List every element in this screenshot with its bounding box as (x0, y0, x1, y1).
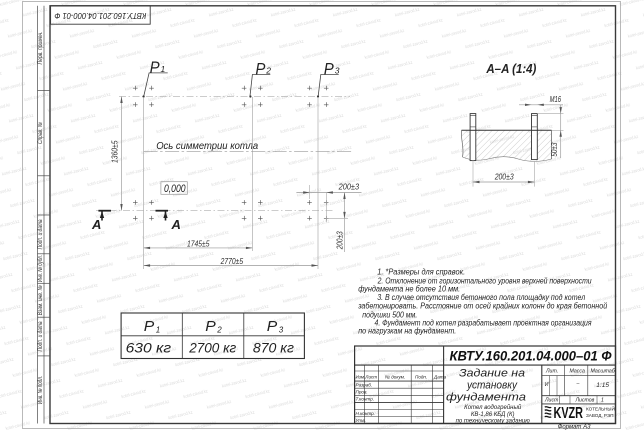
svg-text:kotel-zavod.kz: kotel-zavod.kz (584, 261, 610, 272)
svg-text:№ докум.: № докум. (385, 375, 405, 380)
svg-text:kotel-zavod.kz: kotel-zavod.kz (375, 250, 401, 261)
svg-text:1: 1 (601, 398, 604, 404)
svg-text:kotel-zavod.kz: kotel-zavod.kz (266, 229, 292, 240)
svg-text:kotel-zavod.kz: kotel-zavod.kz (11, 282, 37, 293)
svg-text:kotel-zavod.kz: kotel-zavod.kz (527, 38, 553, 49)
svg-text:kotel-zavod.kz: kotel-zavod.kz (81, 314, 107, 325)
svg-text:kotel-zavod.kz: kotel-zavod.kz (260, 367, 286, 378)
svg-text:kotel-zavod.kz: kotel-zavod.kz (297, 272, 323, 283)
svg-text:kotel-zavod.kz: kotel-zavod.kz (217, 38, 243, 49)
svg-text:kotel-zavod.kz: kotel-zavod.kz (251, 250, 277, 261)
svg-text:P: P (205, 318, 216, 335)
svg-text:kotel-zavod.kz: kotel-zavod.kz (178, 49, 204, 60)
svg-text:kotel-zavod.kz: kotel-zavod.kz (196, 197, 222, 208)
svg-text:A: A (171, 217, 181, 232)
svg-text:kotel-zavod.kz: kotel-zavod.kz (522, 261, 548, 272)
svg-text:kotel-zavod.kz: kotel-zavod.kz (614, 219, 640, 230)
svg-text:kotel-zavod.kz: kotel-zavod.kz (364, 49, 390, 60)
svg-text:забетонировать. Расстояние от: забетонировать. Расстояние от осей крайн… (357, 302, 607, 311)
svg-text:kotel-zavod.kz: kotel-zavod.kz (220, 293, 246, 304)
svg-text:Подп.: Подп. (415, 375, 427, 380)
svg-text:ЗАВОД, РЭП: ЗАВОД, РЭП (586, 413, 614, 418)
svg-text:kotel-zavod.kz: kotel-zavod.kz (490, 219, 516, 230)
svg-text:kotel-zavod.kz: kotel-zavod.kz (187, 166, 213, 177)
svg-text:kotel-zavod.kz: kotel-zavod.kz (403, 38, 429, 49)
svg-text:kotel-zavod.kz: kotel-zavod.kz (420, 187, 446, 198)
svg-text:kotel-zavod.kz: kotel-zavod.kz (459, 176, 485, 187)
svg-text:kotel-zavod.kz: kotel-zavod.kz (458, 91, 484, 102)
svg-text:установку: установку (466, 380, 518, 392)
svg-text:kotel-zavod.kz: kotel-zavod.kz (389, 144, 415, 155)
svg-text:kotel-zavod.kz: kotel-zavod.kz (150, 261, 176, 272)
svg-text:200±3: 200±3 (335, 231, 345, 250)
svg-text:kotel-zavod.kz: kotel-zavod.kz (109, 102, 135, 113)
svg-text:kotel-zavod.kz: kotel-zavod.kz (225, 70, 251, 81)
svg-text:A–A (1:4): A–A (1:4) (485, 62, 536, 76)
svg-text:kotel-zavod.kz: kotel-zavod.kz (416, 409, 442, 420)
svg-text:Утв.: Утв. (356, 418, 366, 423)
svg-text:kotel-zavod.kz: kotel-zavod.kz (132, 113, 158, 124)
svg-text:kotel-zavod.kz: kotel-zavod.kz (480, 17, 506, 28)
svg-text:kotel-zavod.kz: kotel-zavod.kz (620, 81, 644, 92)
svg-text:kotel-zavod.kz: kotel-zavod.kz (0, 388, 23, 399)
svg-text:kotel-zavod.kz: kotel-zavod.kz (194, 113, 220, 124)
svg-text:kotel-zavod.kz: kotel-zavod.kz (449, 60, 475, 71)
svg-text:kotel-zavod.kz: kotel-zavod.kz (56, 219, 82, 230)
svg-text:Масштаб: Масштаб (591, 368, 616, 374)
svg-text:kotel-zavod.kz: kotel-zavod.kz (397, 176, 423, 187)
svg-text:kotel-zavod.kz: kotel-zavod.kz (306, 303, 332, 314)
svg-text:kotel-zavod.kz: kotel-zavod.kz (613, 134, 639, 145)
svg-text:M16: M16 (550, 94, 562, 104)
svg-text:kotel-zavod.kz: kotel-zavod.kz (441, 28, 467, 39)
svg-text:kotel-zavod.kz: kotel-zavod.kz (97, 378, 123, 389)
svg-text:kotel-zavod.kz: kotel-zavod.kz (365, 134, 391, 145)
svg-text:Лит.: Лит. (545, 368, 558, 374)
svg-text:kotel-zavod.kz: kotel-zavod.kz (39, 70, 65, 81)
svg-text:kotel-zavod.kz: kotel-zavod.kz (496, 81, 522, 92)
svg-text:kotel-zavod.kz: kotel-zavod.kz (274, 261, 300, 272)
svg-text:50±3: 50±3 (549, 142, 559, 156)
svg-text:kotel-zavod.kz: kotel-zavod.kz (318, 113, 344, 124)
svg-text:kotel-zavod.kz: kotel-zavod.kz (198, 367, 224, 378)
svg-text:kotel-zavod.kz: kotel-zavod.kz (302, 49, 328, 60)
svg-text:kotel-zavod.kz: kotel-zavod.kz (334, 91, 360, 102)
svg-text:kotel-zavod.kz: kotel-zavod.kz (0, 187, 12, 198)
svg-text:870 кг: 870 кг (253, 340, 294, 356)
svg-text:kotel-zavod.kz: kotel-zavod.kz (0, 134, 19, 145)
svg-text:kotel-zavod.kz: kotel-zavod.kz (51, 356, 77, 367)
svg-text:kotel-zavod.kz: kotel-zavod.kz (542, 17, 568, 28)
svg-text:kotel-zavod.kz: kotel-zavod.kz (628, 113, 644, 124)
svg-text:kotel-zavod.kz: kotel-zavod.kz (392, 399, 418, 410)
svg-text:kotel-zavod.kz: kotel-zavod.kz (341, 38, 367, 49)
svg-text:Подп. и дата: Подп. и дата (38, 219, 44, 250)
svg-text:kotel-zavod.kz: kotel-zavod.kz (249, 166, 275, 177)
svg-text:kotel-zavod.kz: kotel-zavod.kz (183, 388, 209, 399)
svg-text:kotel-zavod.kz: kotel-zavod.kz (168, 409, 194, 420)
svg-text:kotel-zavod.kz: kotel-zavod.kz (33, 208, 59, 219)
svg-text:Лист: Лист (544, 398, 559, 404)
svg-text:kotel-zavod.kz: kotel-zavod.kz (189, 250, 215, 261)
svg-text:kotel-zavod.kz: kotel-zavod.kz (245, 388, 271, 399)
svg-text:kotel-zavod.kz: kotel-zavod.kz (575, 144, 601, 155)
svg-text:kotel-zavod.kz: kotel-zavod.kz (103, 240, 129, 251)
svg-text:kotel-zavod.kz: kotel-zavod.kz (279, 38, 305, 49)
svg-text:kotel-zavod.kz: kotel-zavod.kz (638, 229, 644, 240)
svg-text:2: 2 (265, 65, 271, 75)
svg-text:фундамента не более 10 мм.: фундамента не более 10 мм. (358, 284, 460, 293)
svg-text:kotel-zavod.kz: kotel-zavod.kz (282, 293, 308, 304)
svg-text:Изм.Лист: Изм.Лист (356, 375, 378, 380)
svg-text:kotel-zavod.kz: kotel-zavod.kz (337, 346, 363, 357)
svg-text:kotel-zavod.kz: kotel-zavod.kz (59, 388, 85, 399)
svg-text:kotel-zavod.kz: kotel-zavod.kz (193, 28, 219, 39)
svg-text:kotel-zavod.kz: kotel-zavod.kz (218, 123, 244, 134)
svg-text:kotel-zavod.kz: kotel-zavod.kz (320, 197, 346, 208)
svg-text:kotel-zavod.kz: kotel-zavod.kz (164, 155, 190, 166)
svg-text:kotel-zavod.kz: kotel-zavod.kz (343, 208, 369, 219)
svg-text:kotel-zavod.kz: kotel-zavod.kz (482, 187, 508, 198)
svg-text:kotel-zavod.kz: kotel-zavod.kz (87, 176, 113, 187)
svg-text:kotel-zavod.kz: kotel-zavod.kz (48, 187, 74, 198)
svg-text:kotel-zavod.kz: kotel-zavod.kz (332, 7, 358, 18)
svg-text:kotel-zavod.kz: kotel-zavod.kz (465, 38, 491, 49)
svg-text:kotel-zavod.kz: kotel-zavod.kz (280, 123, 306, 134)
svg-text:Справ. №: Справ. № (37, 122, 44, 144)
svg-text:по нагрузкам на фундамент.: по нагрузкам на фундамент. (358, 327, 456, 336)
svg-text:kotel-zavod.kz: kotel-zavod.kz (111, 272, 137, 283)
svg-text:P: P (267, 318, 278, 335)
svg-text:КВТУ.160.201.04.000-01 Ф: КВТУ.160.201.04.000-01 Ф (54, 11, 147, 20)
svg-text:kotel-zavod.kz: kotel-zavod.kz (142, 229, 168, 240)
svg-text:kotel-zavod.kz: kotel-zavod.kz (144, 399, 170, 410)
svg-text:kotel-zavod.kz: kotel-zavod.kz (74, 367, 100, 378)
svg-text:kotel-zavod.kz: kotel-zavod.kz (0, 155, 4, 166)
svg-text:kotel-zavod.kz: kotel-zavod.kz (166, 325, 192, 336)
svg-text:kotel-zavod.kz: kotel-zavod.kz (0, 17, 10, 28)
svg-text:по техническому заданию: по техническому заданию (456, 419, 531, 425)
svg-text:kotel-zavod.kz: kotel-zavod.kz (444, 197, 470, 208)
svg-text:kotel-zavod.kz: kotel-zavod.kz (314, 335, 340, 346)
svg-text:И: И (545, 382, 549, 388)
svg-text:kotel-zavod.kz: kotel-zavod.kz (208, 7, 234, 18)
svg-text:kotel-zavod.kz: kotel-zavod.kz (317, 28, 343, 39)
svg-text:kotel-zavod.kz: kotel-zavod.kz (382, 197, 408, 208)
svg-text:kotel-zavod.kz: kotel-zavod.kz (41, 240, 67, 251)
svg-text:kotel-zavod.kz: kotel-zavod.kz (499, 250, 525, 261)
svg-text:kotel-zavod.kz: kotel-zavod.kz (170, 17, 196, 28)
svg-text:kotel-zavod.kz: kotel-zavod.kz (0, 240, 5, 251)
svg-text:kotel-zavod.kz: kotel-zavod.kz (405, 208, 431, 219)
svg-text:kotel-zavod.kz: kotel-zavod.kz (413, 240, 439, 251)
svg-text:1. *Размеры для справок.: 1. *Размеры для справок. (377, 267, 465, 276)
svg-text:kotel-zavod.kz: kotel-zavod.kz (125, 166, 151, 177)
svg-text:kotel-zavod.kz: kotel-zavod.kz (558, 81, 584, 92)
svg-text:kotel-zavod.kz: kotel-zavod.kz (349, 70, 375, 81)
svg-text:kotel-zavod.kz: kotel-zavod.kz (597, 70, 623, 81)
svg-text:kotel-zavod.kz: kotel-zavod.kz (630, 197, 644, 208)
svg-text:kotel-zavod.kz: kotel-zavod.kz (106, 409, 132, 420)
svg-text:1:15: 1:15 (596, 382, 609, 389)
svg-text:kotel-zavod.kz: kotel-zavod.kz (503, 28, 529, 39)
svg-text:kotel-zavod.kz: kotel-zavod.kz (72, 197, 98, 208)
svg-text:kotel-zavod.kz: kotel-zavod.kz (281, 208, 307, 219)
svg-text:KVZR: KVZR (554, 405, 584, 422)
svg-text:kotel-zavod.kz: kotel-zavod.kz (514, 229, 540, 240)
svg-text:kotel-zavod.kz: kotel-zavod.kz (330, 399, 356, 410)
svg-text:kotel-zavod.kz: kotel-zavod.kz (232, 17, 258, 28)
svg-text:kotel-zavod.kz: kotel-zavod.kz (609, 356, 635, 367)
svg-text:Н.контр.: Н.контр. (356, 411, 375, 416)
svg-text:kotel-zavod.kz: kotel-zavod.kz (96, 293, 122, 304)
svg-text:kotel-zavod.kz: kotel-zavod.kz (467, 208, 493, 219)
svg-text:kotel-zavod.kz: kotel-zavod.kz (265, 144, 291, 155)
svg-text:kotel-zavod.kz: kotel-zavod.kz (32, 123, 58, 134)
svg-text:kotel-zavod.kz: kotel-zavod.kz (272, 91, 298, 102)
svg-text:1360±5: 1360±5 (110, 140, 120, 163)
svg-text:kotel-zavod.kz: kotel-zavod.kz (390, 229, 416, 240)
svg-text:kotel-zavod.kz: kotel-zavod.kz (77, 60, 103, 71)
svg-text:kotel-zavod.kz: kotel-zavod.kz (49, 272, 75, 283)
svg-text:Взам. инв. №: Взам. инв. № (37, 285, 44, 315)
svg-text:kotel-zavod.kz: kotel-zavod.kz (65, 250, 91, 261)
svg-text:kotel-zavod.kz: kotel-zavod.kz (290, 325, 316, 336)
svg-text:kotel-zavod.kz: kotel-zavod.kz (3, 250, 29, 261)
svg-text:kotel-zavod.kz: kotel-zavod.kz (287, 70, 313, 81)
svg-text:kotel-zavod.kz: kotel-zavod.kz (589, 38, 615, 49)
svg-text:kotel-zavod.kz: kotel-zavod.kz (311, 166, 337, 177)
svg-text:kotel-zavod.kz: kotel-zavod.kz (544, 187, 570, 198)
svg-text:kotel-zavod.kz: kotel-zavod.kz (621, 166, 644, 177)
svg-text:kotel-zavod.kz: kotel-zavod.kz (86, 91, 112, 102)
svg-text:kotel-zavod.kz: kotel-zavod.kz (599, 240, 625, 251)
svg-text:kotel-zavod.kz: kotel-zavod.kz (619, 0, 644, 7)
svg-text:kotel-zavod.kz: kotel-zavod.kz (242, 219, 268, 230)
svg-text:kotel-zavod.kz: kotel-zavod.kz (426, 49, 452, 60)
svg-text:kotel-zavod.kz: kotel-zavod.kz (0, 49, 18, 60)
svg-text:kotel-zavod.kz: kotel-zavod.kz (227, 240, 253, 251)
svg-text:kotel-zavod.kz: kotel-zavod.kz (240, 49, 266, 60)
svg-text:kotel-zavod.kz: kotel-zavod.kz (42, 325, 68, 336)
svg-text:kotel-zavod.kz: kotel-zavod.kz (307, 388, 333, 399)
svg-text:kotel-zavod.kz: kotel-zavod.kz (0, 272, 13, 283)
svg-text:3: 3 (335, 65, 340, 75)
svg-text:kotel-zavod.kz: kotel-zavod.kz (583, 176, 609, 187)
svg-text:200±3: 200±3 (338, 181, 360, 191)
svg-text:Инв. № подл.: Инв. № подл. (37, 376, 44, 404)
svg-text:kotel-zavod.kz: kotel-zavod.kz (456, 7, 482, 18)
svg-text:kotel-zavod.kz: kotel-zavod.kz (434, 81, 460, 92)
svg-text:kotel-zavod.kz: kotel-zavod.kz (248, 81, 274, 92)
svg-text:2700 кг: 2700 кг (188, 340, 236, 356)
svg-text:kotel-zavod.kz: kotel-zavod.kz (604, 17, 630, 28)
svg-text:kotel-zavod.kz: kotel-zavod.kz (342, 123, 368, 134)
svg-text:kotel-zavod.kz: kotel-zavod.kz (336, 261, 362, 272)
svg-text:kotel-zavod.kz: kotel-zavod.kz (270, 7, 296, 18)
svg-text:kotel-zavod.kz: kotel-zavod.kz (535, 70, 561, 81)
svg-text:kotel-zavod.kz: kotel-zavod.kz (233, 102, 259, 113)
svg-text:kotel-zavod.kz: kotel-zavod.kz (158, 293, 184, 304)
svg-text:Котел водогрейный: Котел водогрейный (464, 404, 522, 411)
svg-text:kotel-zavod.kz: kotel-zavod.kz (201, 60, 227, 71)
svg-text:kotel-zavod.kz: kotel-zavod.kz (104, 325, 130, 336)
svg-text:kotel-zavod.kz: kotel-zavod.kz (210, 91, 236, 102)
svg-text:kotel-zavod.kz: kotel-zavod.kz (500, 335, 526, 346)
svg-text:kotel-zavod.kz: kotel-zavod.kz (101, 70, 127, 81)
svg-text:kotel-zavod.kz: kotel-zavod.kz (442, 113, 468, 124)
svg-text:kotel-zavod.kz: kotel-zavod.kz (616, 303, 642, 314)
svg-text:kotel-zavod.kz: kotel-zavod.kz (576, 229, 602, 240)
svg-text:kotel-zavod.kz: kotel-zavod.kz (366, 219, 392, 230)
svg-text:kotel-zavod.kz: kotel-zavod.kz (148, 91, 174, 102)
svg-text:kotel-zavod.kz: kotel-zavod.kz (221, 378, 247, 389)
svg-text:kotel-zavod.kz: kotel-zavod.kz (44, 409, 70, 420)
svg-text:kotel-zavod.kz: kotel-zavod.kz (637, 144, 644, 155)
svg-text:kotel-zavod.kz: kotel-zavod.kz (22, 7, 48, 18)
svg-text:kotel-zavod.kz: kotel-zavod.kz (93, 38, 119, 49)
svg-text:kotel-zavod.kz: kotel-zavod.kz (256, 113, 282, 124)
svg-text:kotel-zavod.kz: kotel-zavod.kz (380, 113, 406, 124)
svg-text:kotel-zavod.kz: kotel-zavod.kz (504, 113, 530, 124)
svg-text:200±3: 200±3 (494, 171, 514, 181)
svg-text:kotel-zavod.kz: kotel-zavod.kz (228, 325, 254, 336)
svg-text:kotel-zavod.kz: kotel-zavod.kz (437, 250, 463, 261)
svg-text:kotel-zavod.kz: kotel-zavod.kz (565, 28, 591, 39)
svg-text:kotel-zavod.kz: kotel-zavod.kz (623, 250, 644, 261)
svg-text:kotel-zavod.kz: kotel-zavod.kz (550, 49, 576, 60)
svg-text:kotel-zavod.kz: kotel-zavod.kz (537, 240, 563, 251)
svg-text:kotel-zavod.kz: kotel-zavod.kz (8, 113, 34, 124)
svg-text:kotel-zavod.kz: kotel-zavod.kz (561, 250, 587, 261)
svg-text:kotel-zavod.kz: kotel-zavod.kz (552, 219, 578, 230)
svg-text:kotel-zavod.kz: kotel-zavod.kz (529, 208, 555, 219)
svg-text:kotel-zavod.kz: kotel-zavod.kz (292, 409, 318, 420)
svg-text:kotel-zavod.kz: kotel-zavod.kz (356, 17, 382, 28)
svg-text:kotel-zavod.kz: kotel-zavod.kz (58, 303, 84, 314)
svg-text:kotel-zavod.kz: kotel-zavod.kz (24, 91, 50, 102)
svg-text:КВТУ.160.201.04.000–01 Ф: КВТУ.160.201.04.000–01 Ф (450, 348, 612, 364)
svg-text:kotel-zavod.kz: kotel-zavod.kz (404, 123, 430, 134)
svg-text:kotel-zavod.kz: kotel-zavod.kz (159, 378, 185, 389)
svg-text:kotel-zavod.kz: kotel-zavod.kz (54, 49, 80, 60)
svg-text:Подп. и дата: Подп. и дата (38, 321, 44, 352)
svg-text:Инв. № дубл.: Инв. № дубл. (37, 255, 44, 282)
svg-text:kotel-zavod.kz: kotel-zavod.kz (62, 81, 88, 92)
svg-text:kotel-zavod.kz: kotel-zavod.kz (600, 325, 626, 336)
svg-text:kotel-zavod.kz: kotel-zavod.kz (351, 240, 377, 251)
svg-text:kotel-zavod.kz: kotel-zavod.kz (73, 282, 99, 293)
svg-text:kotel-zavod.kz: kotel-zavod.kz (418, 17, 444, 28)
svg-text:kotel-zavod.kz: kotel-zavod.kz (562, 335, 588, 346)
svg-text:2: 2 (216, 326, 222, 335)
svg-text:kotel-zavod.kz: kotel-zavod.kz (234, 187, 260, 198)
svg-text:kotel-zavod.kz: kotel-zavod.kz (117, 134, 143, 145)
svg-text:kotel-zavod.kz: kotel-zavod.kz (357, 102, 383, 113)
svg-text:kotel-zavod.kz: kotel-zavod.kz (219, 208, 245, 219)
svg-text:КВ-1,86 КБД (К): КВ-1,86 КБД (К) (471, 412, 515, 418)
svg-text:kotel-zavod.kz: kotel-zavod.kz (327, 144, 353, 155)
svg-text:1: 1 (156, 326, 160, 335)
svg-text:kotel-zavod.kz: kotel-zavod.kz (582, 91, 608, 102)
svg-text:КОТЕЛЬНЫЙ: КОТЕЛЬНЫЙ (586, 405, 615, 412)
svg-text:Листов: Листов (575, 398, 595, 404)
svg-text:kotel-zavod.kz: kotel-zavod.kz (428, 219, 454, 230)
svg-text:630 кг: 630 кг (126, 340, 172, 356)
svg-text:kotel-zavod.kz: kotel-zavod.kz (627, 28, 644, 39)
svg-text:3: 3 (279, 326, 284, 335)
svg-text:Разраб.: Разраб. (356, 383, 373, 388)
svg-text:фундамента: фундамента (446, 392, 526, 404)
svg-text:kotel-zavod.kz: kotel-zavod.kz (283, 378, 309, 389)
svg-text:kotel-zavod.kz: kotel-zavod.kz (396, 91, 422, 102)
svg-text:Формат А3: Формат А3 (558, 424, 591, 430)
svg-text:kotel-zavod.kz: kotel-zavod.kz (520, 91, 546, 102)
svg-text:kotel-zavod.kz: kotel-zavod.kz (294, 17, 320, 28)
svg-text:kotel-zavod.kz: kotel-zavod.kz (206, 399, 232, 410)
svg-text:kotel-zavod.kz: kotel-zavod.kz (518, 7, 544, 18)
svg-text:kotel-zavod.kz: kotel-zavod.kz (310, 81, 336, 92)
svg-text:kotel-zavod.kz: kotel-zavod.kz (186, 81, 212, 92)
svg-text:kotel-zavod.kz: kotel-zavod.kz (70, 113, 96, 124)
svg-text:kotel-zavod.kz: kotel-zavod.kz (82, 399, 108, 410)
svg-text:kotel-zavod.kz: kotel-zavod.kz (136, 367, 162, 378)
svg-text:Ось симметрии котла: Ось симметрии котла (156, 141, 258, 152)
svg-text:Дата: Дата (433, 375, 447, 380)
svg-text:kotel-zavod.kz: kotel-zavod.kz (605, 102, 631, 113)
svg-text:kotel-zavod.kz: kotel-zavod.kz (226, 155, 252, 166)
svg-text:kotel-zavod.kz: kotel-zavod.kz (488, 49, 514, 60)
svg-text:kotel-zavod.kz: kotel-zavod.kz (135, 282, 161, 293)
svg-text:kotel-zavod.kz: kotel-zavod.kz (321, 282, 347, 293)
svg-text:kotel-zavod.kz: kotel-zavod.kz (12, 367, 38, 378)
svg-text:kotel-zavod.kz: kotel-zavod.kz (235, 272, 261, 283)
svg-text:kotel-zavod.kz: kotel-zavod.kz (295, 102, 321, 113)
svg-text:kotel-zavod.kz: kotel-zavod.kz (0, 303, 22, 314)
svg-text:kotel-zavod.kz: kotel-zavod.kz (118, 219, 144, 230)
svg-text:kotel-zavod.kz: kotel-zavod.kz (419, 102, 445, 113)
svg-text:kotel-zavod.kz: kotel-zavod.kz (197, 282, 223, 293)
svg-text:kotel-zavod.kz: kotel-zavod.kz (211, 176, 237, 187)
svg-text:0,000: 0,000 (164, 183, 186, 195)
svg-text:kotel-zavod.kz: kotel-zavod.kz (631, 282, 644, 293)
svg-text:kotel-zavod.kz: kotel-zavod.kz (452, 229, 478, 240)
svg-text:kotel-zavod.kz: kotel-zavod.kz (0, 0, 25, 7)
svg-text:kotel-zavod.kz: kotel-zavod.kz (0, 409, 8, 420)
svg-text:Т.контр.: Т.контр. (356, 397, 375, 402)
svg-text:kotel-zavod.kz: kotel-zavod.kz (640, 399, 644, 410)
svg-text:kotel-zavod.kz: kotel-zavod.kz (173, 272, 199, 283)
svg-text:kotel-zavod.kz: kotel-zavod.kz (110, 187, 136, 198)
svg-text:kotel-zavod.kz: kotel-zavod.kz (259, 282, 285, 293)
svg-text:kotel-zavod.kz: kotel-zavod.kz (63, 166, 89, 177)
svg-text:P: P (150, 59, 160, 77)
svg-text:kotel-zavod.kz: kotel-zavod.kz (89, 346, 115, 357)
svg-text:kotel-zavod.kz: kotel-zavod.kz (591, 208, 617, 219)
svg-text:kotel-zavod.kz: kotel-zavod.kz (1, 166, 27, 177)
svg-text:kotel-zavod.kz: kotel-zavod.kz (273, 176, 299, 187)
svg-text:kotel-zavod.kz: kotel-zavod.kz (568, 197, 594, 208)
svg-text:kotel-zavod.kz: kotel-zavod.kz (438, 335, 464, 346)
svg-text:kotel-zavod.kz: kotel-zavod.kz (322, 367, 348, 378)
svg-text:kotel-zavod.kz: kotel-zavod.kz (88, 261, 114, 272)
svg-text:kotel-zavod.kz: kotel-zavod.kz (25, 176, 51, 187)
svg-text:kotel-zavod.kz: kotel-zavod.kz (127, 250, 153, 261)
svg-text:kotel-zavod.kz: kotel-zavod.kz (17, 144, 43, 155)
svg-text:kotel-zavod.kz: kotel-zavod.kz (423, 356, 449, 367)
svg-text:Масса: Масса (570, 368, 585, 374)
svg-text:kotel-zavod.kz: kotel-zavod.kz (0, 325, 6, 336)
